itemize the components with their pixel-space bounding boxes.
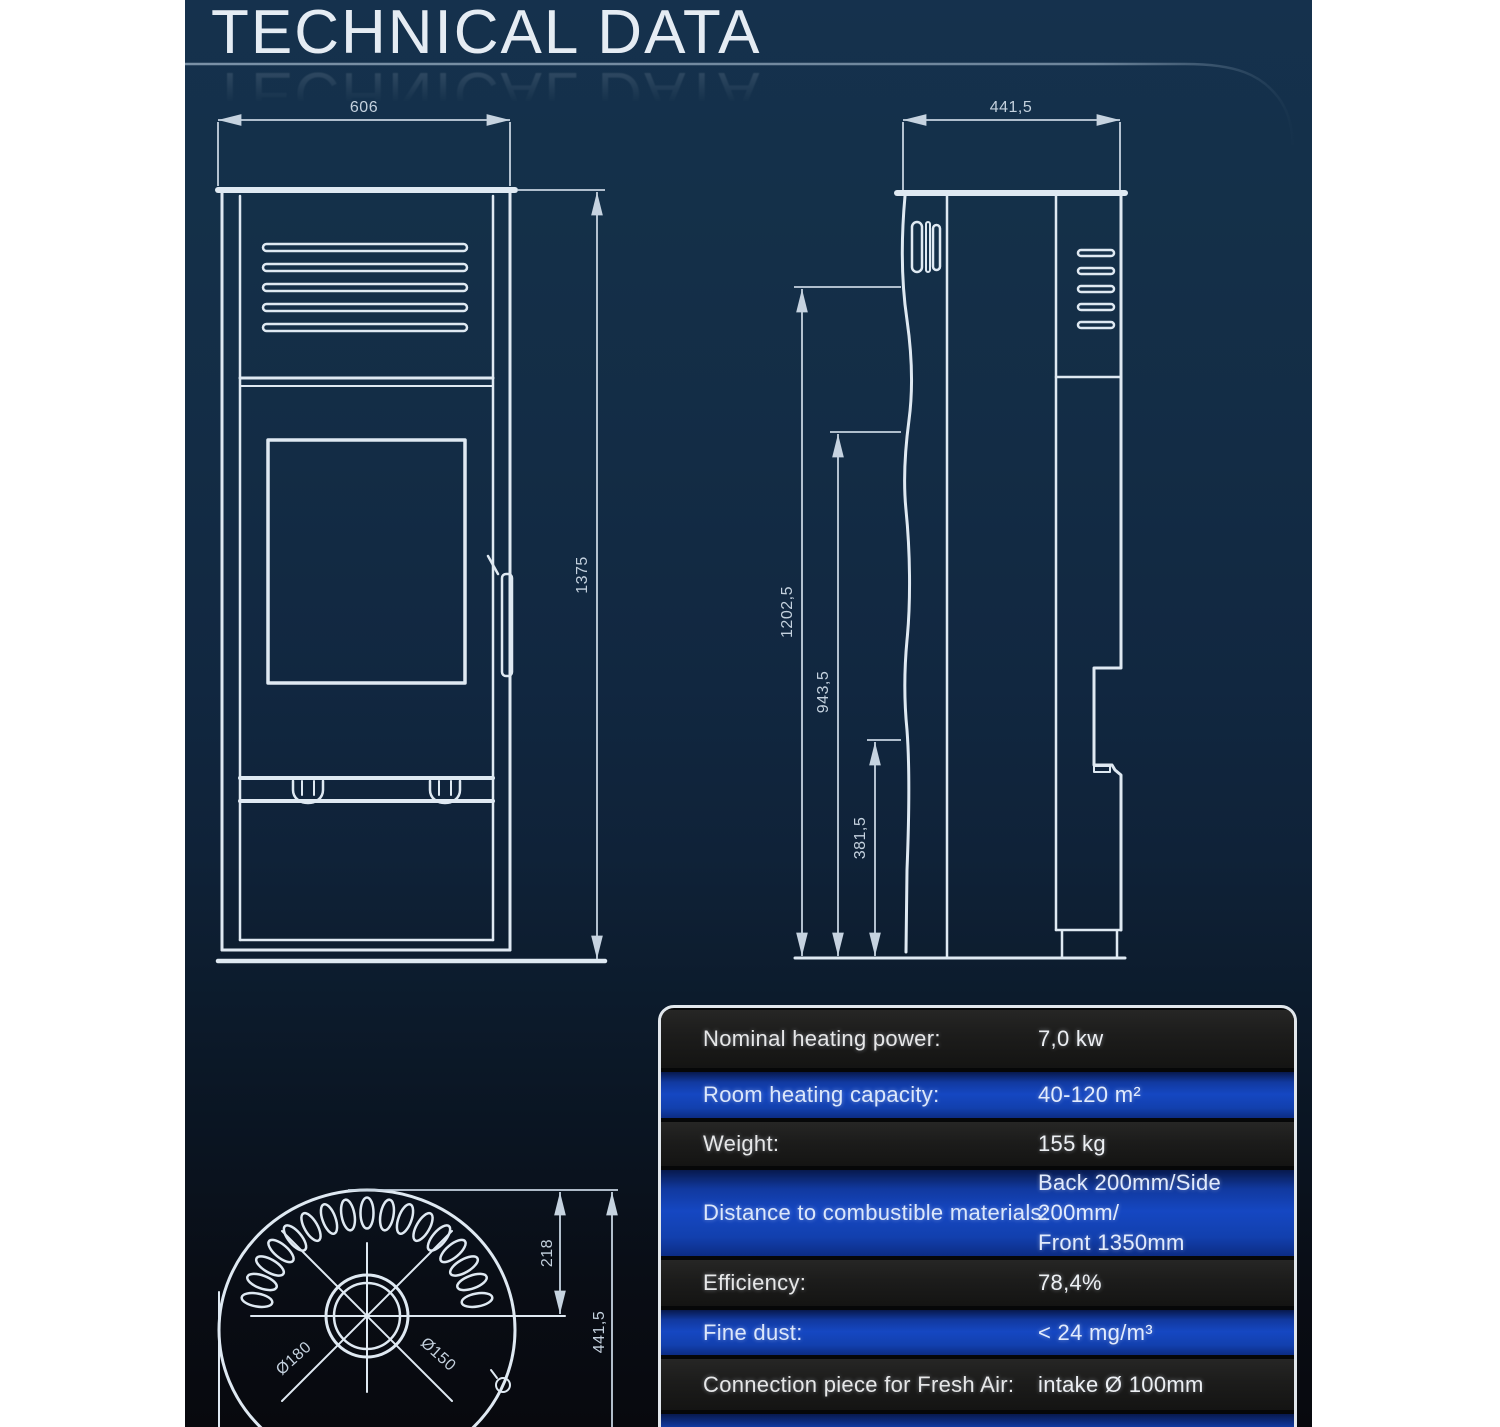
side-vent-slats — [1078, 250, 1114, 328]
spec-value: 40-120 m² — [1038, 1080, 1141, 1110]
table-row-partial — [661, 1414, 1294, 1427]
page: 606 — [0, 0, 1500, 1427]
table-row: Connection piece for Fresh Air: intake Ø… — [661, 1359, 1294, 1410]
spec-value-line1: Back 200mm/Side 200mm/ — [1038, 1170, 1221, 1225]
front-door-handle — [488, 556, 512, 676]
flue-outer-dia-label: Ø180 — [273, 1339, 315, 1379]
top-view-drawing: Ø180 Ø150 218 441,5 — [219, 1190, 618, 1427]
front-view-drawing: 606 — [218, 99, 605, 961]
technical-data-panel: 606 — [185, 0, 1312, 1427]
spec-label: Weight: — [703, 1131, 779, 1157]
spec-value: 78,4% — [1038, 1268, 1102, 1298]
front-door-glass — [268, 440, 465, 683]
side-height-mid-dim-label: 943,5 — [815, 671, 832, 714]
side-handle-bars — [912, 222, 940, 272]
spec-value: intake Ø 100mm — [1038, 1370, 1204, 1400]
spec-label: Nominal heating power: — [703, 1026, 941, 1052]
page-title-reflection: TECHNICAL DATA — [211, 62, 761, 124]
spec-label: Distance to combustible materials: — [703, 1200, 1048, 1226]
table-row: Room heating capacity: 40-120 m² — [661, 1072, 1294, 1118]
spec-label: Room heating capacity: — [703, 1082, 940, 1108]
side-height-low-dim-label: 381,5 — [852, 817, 869, 860]
side-back-profile — [1094, 196, 1121, 930]
spec-table: Nominal heating power: 7,0 kw Room heati… — [658, 1005, 1297, 1427]
table-row: Nominal heating power: 7,0 kw — [661, 1010, 1294, 1068]
table-row: Weight: 155 kg — [661, 1122, 1294, 1166]
spec-value: 7,0 kw — [1038, 1024, 1103, 1054]
spec-value: 155 kg — [1038, 1129, 1106, 1159]
spec-value-line2: Front 1350mm — [1038, 1230, 1185, 1255]
side-front-profile — [902, 196, 911, 952]
spec-label: Connection piece for Fresh Air: — [703, 1372, 1014, 1398]
spec-value: Back 200mm/Side 200mm/ Front 1350mm — [1038, 1168, 1294, 1258]
table-row: Distance to combustible materials: Back … — [661, 1170, 1294, 1256]
spec-label: Fine dust: — [703, 1320, 803, 1346]
spec-label: Efficiency: — [703, 1270, 806, 1296]
flue-inner-dia-label: Ø150 — [417, 1335, 459, 1375]
table-row: Fine dust: < 24 mg/m³ — [661, 1310, 1294, 1355]
top-offset-dim-label: 218 — [539, 1239, 556, 1267]
spec-value: < 24 mg/m³ — [1038, 1318, 1153, 1348]
side-height-total-dim-label: 1202,5 — [779, 586, 796, 638]
table-row: Efficiency: 78,4% — [661, 1260, 1294, 1306]
page-title: TECHNICAL DATA — [211, 2, 761, 64]
top-depth-dim-label: 441,5 — [591, 1311, 608, 1354]
side-depth-dim-label: 441,5 — [990, 99, 1033, 116]
side-view-drawing: 441,5 — [779, 99, 1125, 958]
front-vent-slats — [263, 244, 467, 331]
front-height-dim-label: 1375 — [574, 556, 591, 594]
